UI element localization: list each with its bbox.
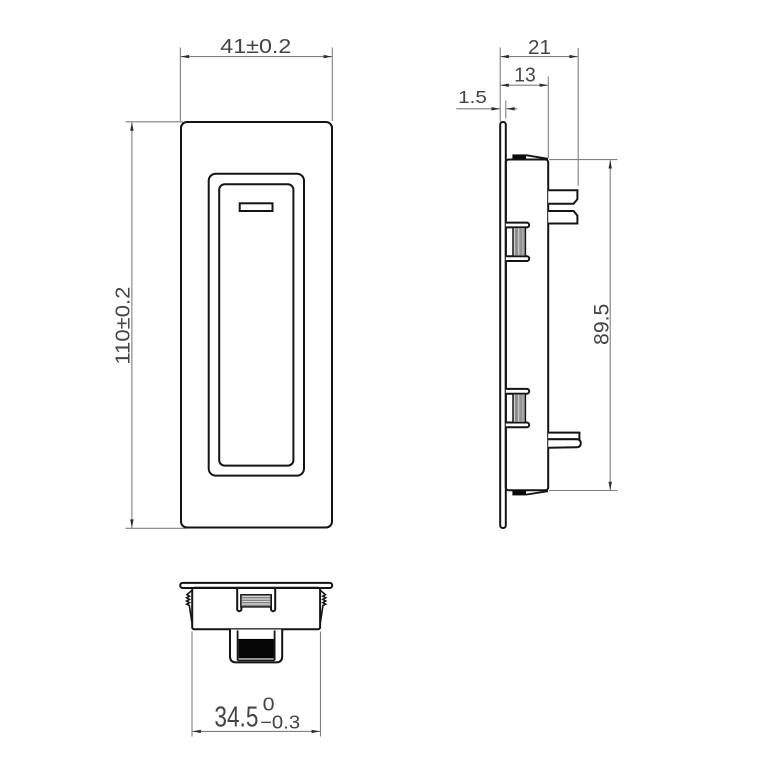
svg-text:13: 13 (514, 63, 536, 86)
svg-text:110±0.2: 110±0.2 (112, 287, 135, 365)
svg-text:34.5: 34.5 (214, 702, 258, 734)
svg-text:89.5: 89.5 (589, 304, 613, 345)
svg-text:41±0.2: 41±0.2 (220, 35, 291, 58)
svg-text:−0.3: −0.3 (260, 711, 300, 732)
svg-text:1.5: 1.5 (458, 87, 487, 107)
svg-text:21: 21 (528, 36, 551, 59)
